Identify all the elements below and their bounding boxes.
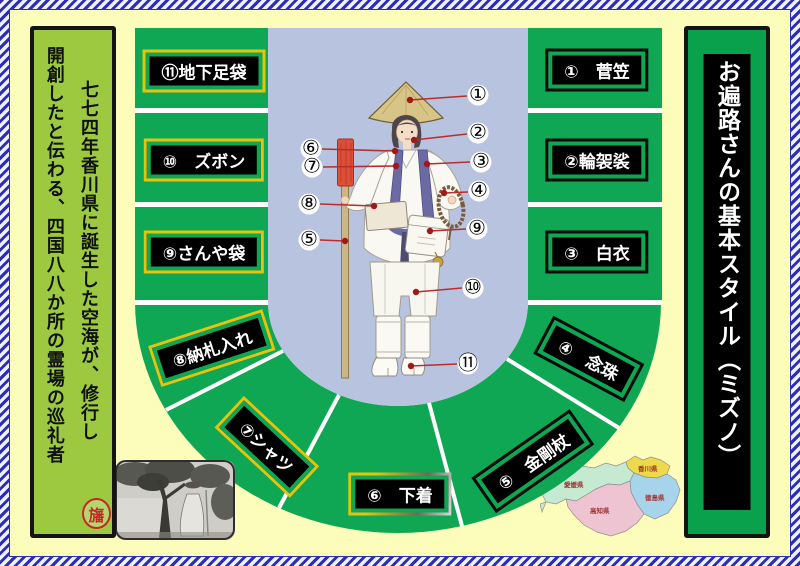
callout-10: ⑩ xyxy=(463,278,484,299)
left-caption-text: 七七四年香川県に誕生した空海が、修行し 開創したと伝わる、四国八八か所の霊場の巡… xyxy=(34,30,112,534)
map-label-tokushima: 徳島県 xyxy=(644,493,665,502)
callout-7: ⑦ xyxy=(302,157,323,178)
caption-column-left: 開創したと伝わる、四国八八か所の霊場の巡礼者 xyxy=(38,34,72,530)
caption-column-right: 七七四年香川県に誕生した空海が、修行し xyxy=(72,34,106,530)
callout-8: ⑧ xyxy=(299,194,320,215)
label-sanya-bag: ⑨さんや袋 xyxy=(144,231,264,274)
callout-9: ⑨ xyxy=(467,219,488,240)
label-white-robe: ③ 白衣 xyxy=(545,231,648,274)
map-label-kochi: 高知県 xyxy=(590,506,610,515)
red-seal-stamp: 旛 xyxy=(82,498,111,529)
callout-4: ④ xyxy=(469,181,490,202)
label-sedge-hat: ① 菅笠 xyxy=(545,49,648,92)
map-label-kagawa: 香川県 xyxy=(638,464,658,473)
callout-1: ① xyxy=(468,85,489,106)
map-label-ehime: 愛媛県 xyxy=(564,480,584,489)
historic-pilgrim-photo xyxy=(115,460,235,540)
label-tabi: ⑪地下足袋 xyxy=(143,50,266,93)
title-strip: お遍路さんの基本スタイル（ミズノ） xyxy=(704,54,751,510)
left-caption-banner: 七七四年香川県に誕生した空海が、修行し 開創したと伝わる、四国八八か所の霊場の巡… xyxy=(30,26,116,538)
label-trousers: ⑩ ズボン xyxy=(144,139,264,182)
callout-5: ⑤ xyxy=(299,230,320,251)
label-wagesa: ②輪袈裟 xyxy=(545,139,648,182)
callout-3: ③ xyxy=(471,152,492,173)
callout-11: ⑪ xyxy=(458,354,479,375)
title-banner: お遍路さんの基本スタイル（ミズノ） xyxy=(684,26,770,538)
callout-2: ② xyxy=(468,123,489,144)
label-underwear: ⑥ 下着 xyxy=(348,473,451,516)
poster-title: お遍路さんの基本スタイル（ミズノ） xyxy=(716,60,739,510)
